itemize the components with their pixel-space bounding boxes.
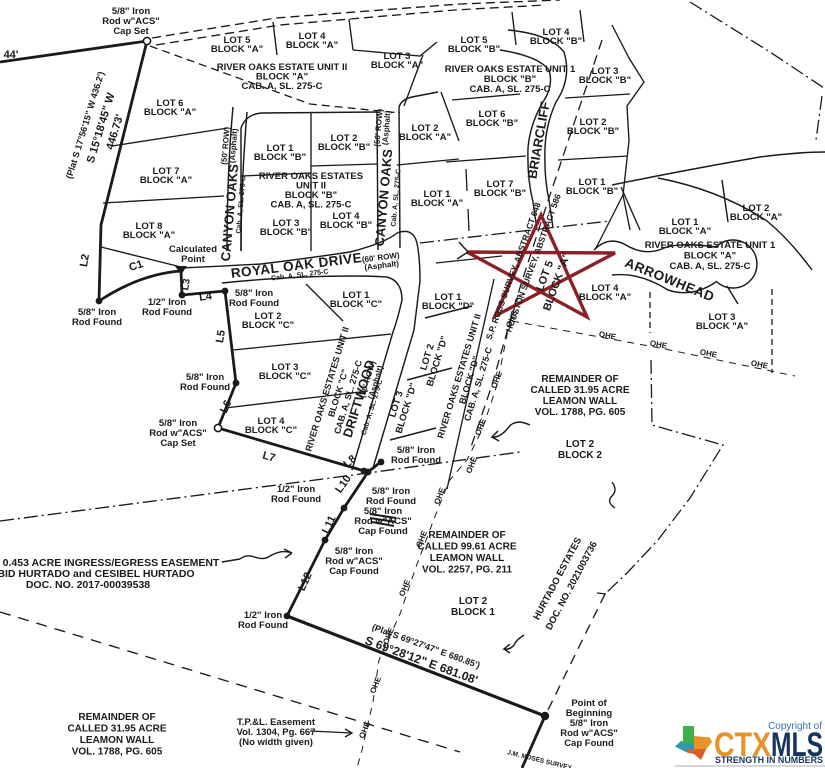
svg-text:BLOCK "A": BLOCK "A" — [144, 107, 196, 118]
svg-text:BLOCK "A": BLOCK "A" — [211, 44, 263, 55]
svg-text:BLOCK "A": BLOCK "A" — [371, 60, 423, 71]
svg-text:Rod Found: Rod Found — [271, 494, 321, 505]
svg-text:BLOCK "C": BLOCK "C" — [245, 425, 297, 436]
svg-text:BLOCK "B": BLOCK "B" — [466, 118, 518, 129]
svg-text:REMAINDER OF: REMAINDER OF — [428, 530, 505, 541]
svg-text:Rod Found: Rod Found — [180, 382, 230, 393]
svg-text:(No width given): (No width given) — [239, 737, 313, 748]
svg-text:Cap Found: Cap Found — [358, 526, 408, 537]
svg-text:LEAMON WALL: LEAMON WALL — [430, 553, 504, 564]
svg-text:BLOCK "B": BLOCK "B" — [567, 126, 619, 137]
svg-text:VOL. 1788, PG. 605: VOL. 1788, PG. 605 — [72, 747, 163, 758]
svg-text:BLOCK "A": BLOCK "A" — [696, 321, 748, 332]
svg-text:BLOCK "C": BLOCK "C" — [259, 371, 311, 382]
svg-text:BLOCK "A": BLOCK "A" — [659, 226, 711, 237]
svg-text:CALLED 31.95 ACRE: CALLED 31.95 ACRE — [67, 724, 166, 735]
svg-text:BLOCK 2: BLOCK 2 — [558, 450, 602, 461]
svg-text:CAB. A, SL. 275-C: CAB. A, SL. 275-C — [242, 81, 323, 92]
svg-text:CALLED 99.61 ACRE: CALLED 99.61 ACRE — [417, 542, 516, 553]
svg-text:Rod Found: Rod Found — [391, 455, 441, 466]
svg-text:L4: L4 — [198, 290, 213, 304]
svg-text:BLOCK "B": BLOCK "B" — [448, 44, 500, 55]
svg-text:L3: L3 — [180, 277, 193, 291]
svg-text:BLOCK "B": BLOCK "B" — [320, 220, 372, 231]
svg-text:DOC. NO. 2017-00039538: DOC. NO. 2017-00039538 — [26, 579, 150, 591]
svg-text:BLOCK 1: BLOCK 1 — [451, 607, 495, 618]
svg-text:Cap Set: Cap Set — [113, 26, 149, 37]
svg-text:Rod Found: Rod Found — [238, 620, 288, 631]
svg-text:BLOCK "B": BLOCK "B" — [318, 142, 370, 153]
svg-text:CAB. A, SL. 275-C: CAB. A, SL. 275-C — [271, 200, 352, 211]
svg-text:LOT 2: LOT 2 — [459, 596, 488, 607]
svg-text:CALLED 31.95 ACRE: CALLED 31.95 ACRE — [530, 385, 629, 396]
svg-text:BLOCK "A": BLOCK "A" — [684, 251, 736, 262]
svg-text:STRENGTH IN NUMBERS: STRENGTH IN NUMBERS — [715, 755, 823, 765]
svg-text:VOL. 1788, PG. 605: VOL. 1788, PG. 605 — [535, 407, 626, 418]
svg-text:L5: L5 — [214, 329, 228, 344]
svg-text:BLOCK "A": BLOCK "A" — [123, 230, 175, 241]
svg-text:BLOCK "A": BLOCK "A" — [411, 198, 463, 209]
svg-text:RIVER OAKS ESTATE UNIT 1: RIVER OAKS ESTATE UNIT 1 — [645, 240, 776, 251]
svg-text:BLOCK "B": BLOCK "B" — [254, 152, 306, 163]
svg-text:BLOCK "C": BLOCK "C" — [242, 320, 294, 331]
svg-text:BLOCK "B": BLOCK "B" — [566, 186, 618, 197]
svg-text:Cap Found: Cap Found — [564, 738, 614, 749]
svg-text:REMAINDER OF: REMAINDER OF — [541, 374, 618, 385]
svg-text:BLOCK "A": BLOCK "A" — [579, 292, 631, 303]
svg-text:REMAINDER OF: REMAINDER OF — [78, 712, 155, 723]
svg-text:CAB. A, SL. 275-C: CAB. A, SL. 275-C — [670, 261, 751, 272]
svg-text:LOT 2: LOT 2 — [566, 439, 595, 450]
svg-text:BLOCK "A": BLOCK "A" — [286, 40, 338, 51]
svg-text:BLOCK "B": BLOCK "B" — [579, 75, 631, 86]
svg-text:BLOCK "B": BLOCK "B" — [260, 227, 312, 238]
svg-text:44': 44' — [4, 49, 19, 61]
svg-text:VOL. 2257, PG. 211: VOL. 2257, PG. 211 — [422, 565, 512, 576]
svg-text:BLOCK "B": BLOCK "B" — [474, 188, 526, 199]
svg-text:L2: L2 — [78, 253, 92, 268]
svg-text:BLOCK "B": BLOCK "B" — [530, 36, 582, 47]
svg-text:CAB. A, SL. 275-C: CAB. A, SL. 275-C — [470, 84, 551, 95]
svg-text:Rod Found: Rod Found — [229, 298, 279, 309]
svg-text:Point: Point — [181, 254, 206, 265]
svg-text:BLOCK "A": BLOCK "A" — [399, 132, 451, 143]
svg-text:Rod Found: Rod Found — [72, 317, 122, 328]
svg-text:Cap Found: Cap Found — [329, 566, 379, 577]
svg-text:BLOCK "D": BLOCK "D" — [422, 301, 474, 312]
svg-text:BLOCK "A": BLOCK "A" — [140, 175, 192, 186]
svg-text:BLOCK "A": BLOCK "A" — [730, 212, 782, 223]
svg-text:Rod Found: Rod Found — [142, 307, 192, 318]
svg-text:LEAMON WALL: LEAMON WALL — [543, 396, 617, 407]
svg-text:LEAMON WALL: LEAMON WALL — [80, 735, 154, 746]
svg-text:BLOCK "C": BLOCK "C" — [330, 299, 382, 310]
svg-text:Cap Set: Cap Set — [160, 438, 196, 449]
